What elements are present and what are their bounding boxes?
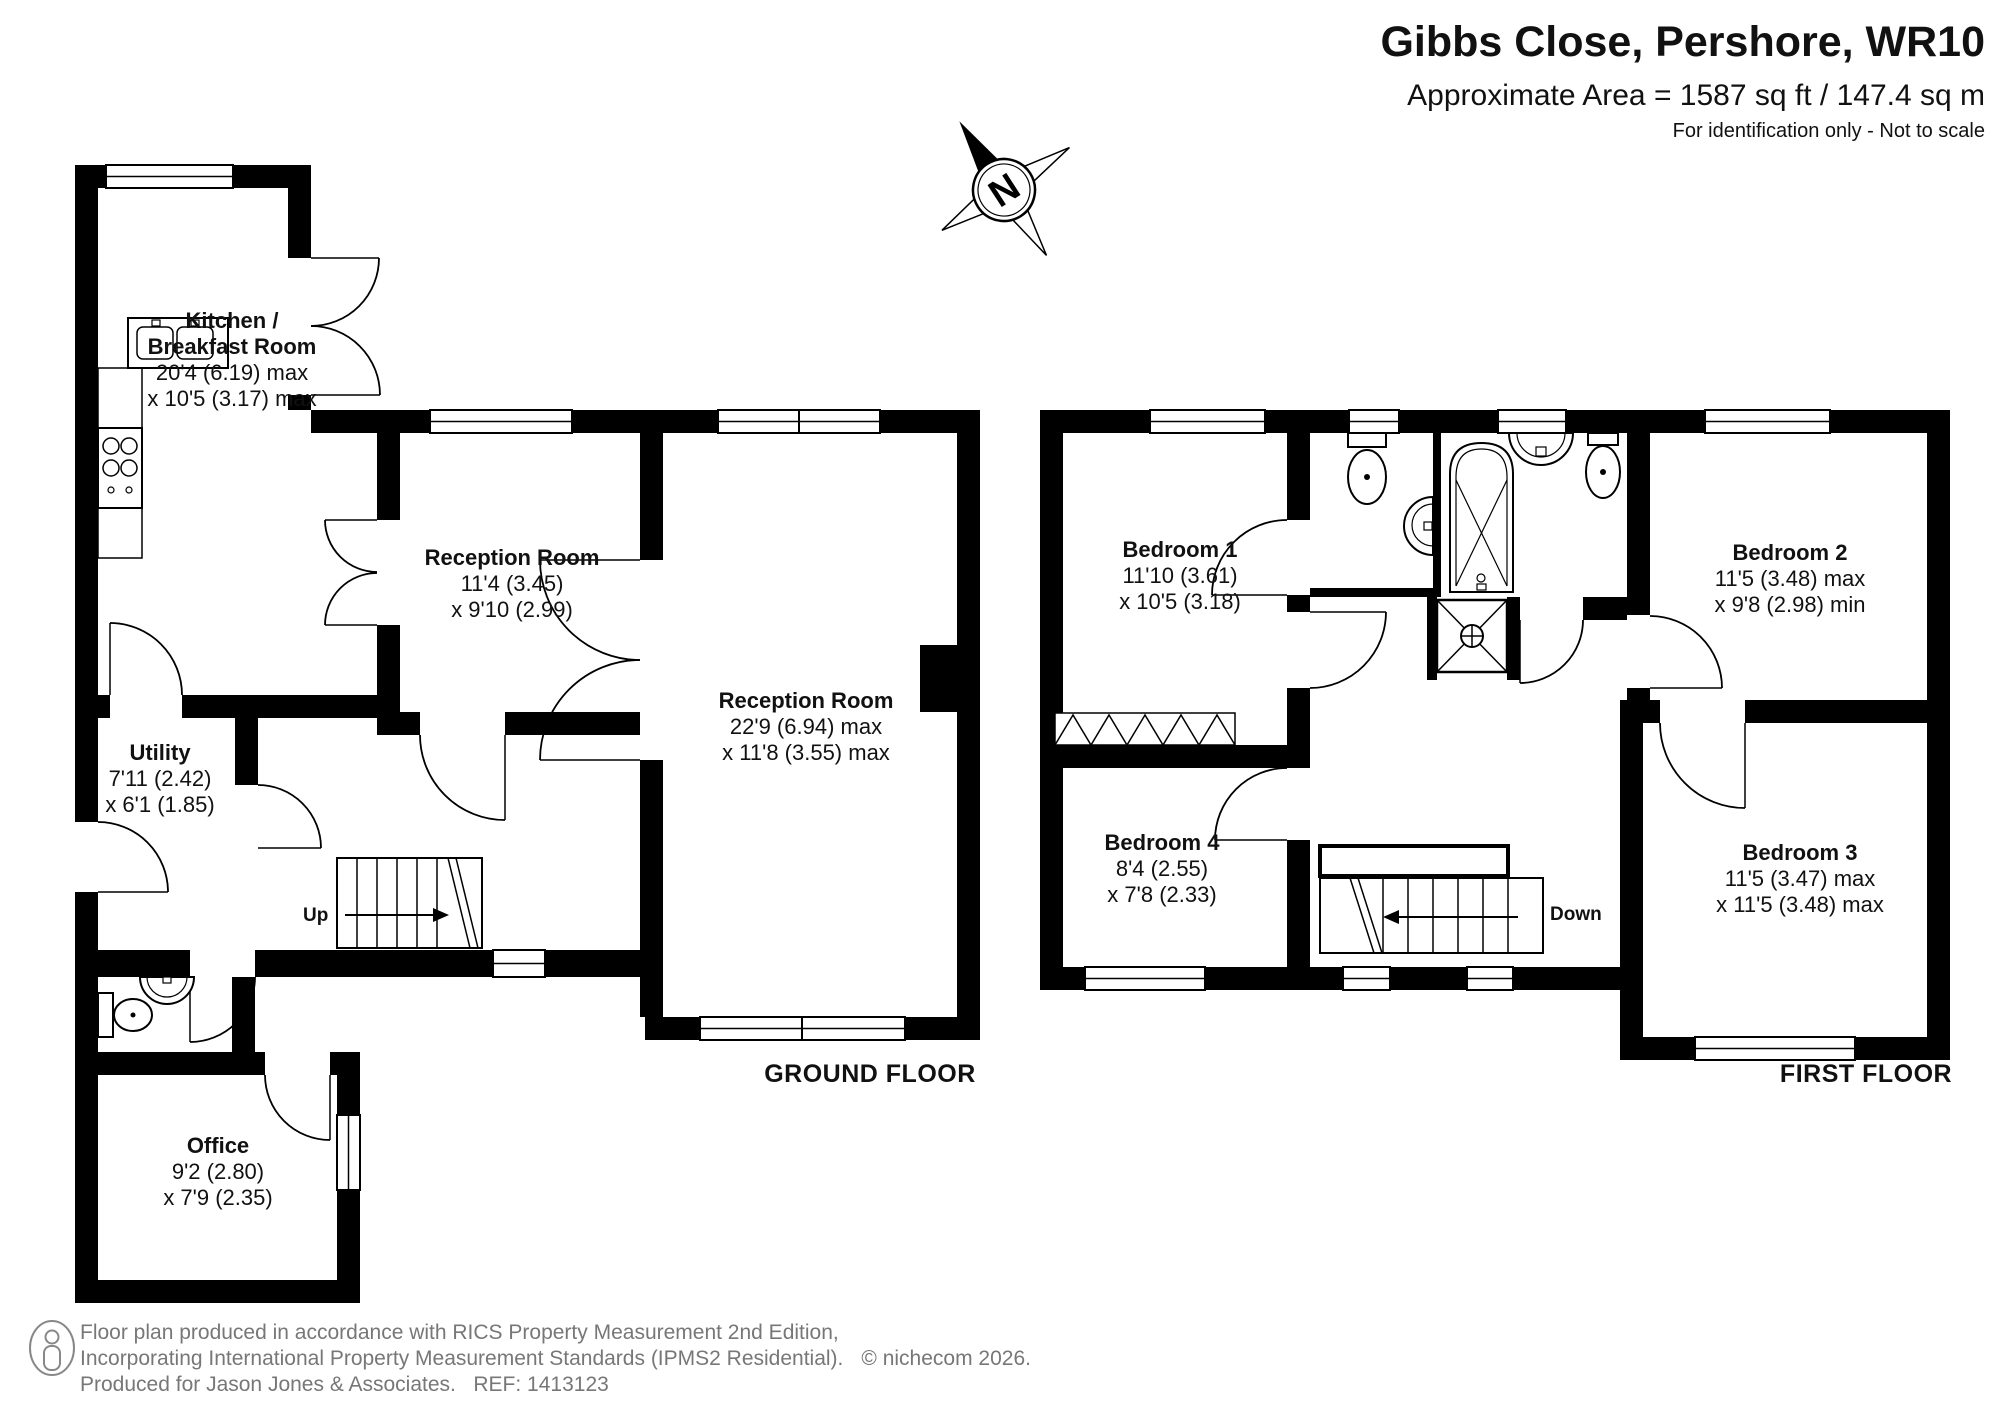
identification-note: For identification only - Not to scale — [1380, 120, 1985, 143]
room-name: Bedroom 1 — [1119, 537, 1241, 563]
window — [106, 165, 233, 188]
room-dimensions: x 6'1 (1.85) — [105, 792, 214, 818]
door-arc — [110, 623, 182, 695]
window — [1498, 410, 1566, 433]
room-dimensions: 11'10 (3.61) — [1119, 563, 1241, 589]
room-dimensions: 11'4 (3.45) — [425, 571, 600, 597]
room-name: Bedroom 3 — [1716, 840, 1884, 866]
room-dimensions: x 10'5 (3.17) max — [147, 386, 316, 412]
bath-icon — [1450, 443, 1513, 592]
copyright-text: © nichecom 2026. — [861, 1347, 1031, 1370]
room-dimensions: 11'5 (3.48) max — [1715, 566, 1866, 592]
ground-floor-title: GROUND FLOOR — [764, 1060, 976, 1089]
basin-icon — [140, 977, 194, 1004]
door-arc — [1310, 612, 1386, 688]
approximate-area-text: Approximate Area = 1587 sq ft / 147.4 sq… — [1380, 79, 1985, 113]
window — [1150, 410, 1265, 433]
room-dimensions: 9'2 (2.80) — [163, 1159, 272, 1185]
window — [337, 1115, 360, 1190]
room-label-utility: Utility 7'11 (2.42) x 6'1 (1.85) — [105, 740, 214, 818]
room-dimensions: 22'9 (6.94) max — [719, 714, 894, 740]
floorplan-page: N Gibbs Close, Pershore, WR10 Approximat… — [0, 0, 2000, 1414]
room-name: Bedroom 4 — [1105, 830, 1220, 856]
basin-icon — [1509, 433, 1573, 465]
window — [700, 1017, 905, 1040]
window — [1343, 967, 1390, 990]
window — [1467, 967, 1513, 990]
plan-header: Gibbs Close, Pershore, WR10 Approximate … — [1380, 18, 1985, 143]
landing-rail — [1320, 846, 1508, 876]
person-logo-icon — [30, 1321, 74, 1375]
room-dimensions: x 11'8 (3.55) max — [719, 740, 894, 766]
room-label-office: Office 9'2 (2.80) x 7'9 (2.35) — [163, 1133, 272, 1211]
wc-fixtures — [98, 977, 194, 1037]
bathroom-fixtures — [1437, 433, 1620, 672]
wardrobe-icon — [1055, 713, 1235, 745]
room-dimensions: 7'11 (2.42) — [105, 766, 214, 792]
room-dimensions: x 10'5 (3.18) — [1119, 589, 1241, 615]
door-arc — [98, 822, 168, 892]
room-name: Breakfast Room — [147, 334, 316, 360]
room-label-bedroom-2: Bedroom 2 11'5 (3.48) max x 9'8 (2.98) m… — [1715, 540, 1866, 618]
stairs-down — [1320, 846, 1543, 953]
door-arc — [1660, 723, 1745, 808]
door-arc — [258, 785, 321, 848]
patio-door-arc — [311, 258, 380, 395]
hob-icon — [98, 428, 142, 508]
footer-line-3: Produced for Jason Jones & Associates. R… — [80, 1372, 1031, 1398]
window — [1085, 967, 1205, 990]
first-floor-title: FIRST FLOOR — [1780, 1060, 1952, 1089]
toilet-icon — [1348, 433, 1386, 504]
room-name: Utility — [105, 740, 214, 766]
toilet-icon — [1586, 433, 1620, 498]
stairs-up — [337, 858, 482, 948]
ensuite-fixtures — [1348, 433, 1433, 555]
chimney-breast — [920, 645, 957, 712]
room-name: Office — [163, 1133, 272, 1159]
room-name: Kitchen / — [147, 308, 316, 334]
room-name: Reception Room — [425, 545, 600, 571]
room-label-reception-room-1: Reception Room 11'4 (3.45) x 9'10 (2.99) — [425, 545, 600, 623]
room-dimensions: 8'4 (2.55) — [1105, 856, 1220, 882]
window — [718, 410, 880, 433]
footer: Floor plan produced in accordance with R… — [80, 1320, 1031, 1398]
room-label-reception-room-2: Reception Room 22'9 (6.94) max x 11'8 (3… — [719, 688, 894, 766]
room-label-bedroom-4: Bedroom 4 8'4 (2.55) x 7'8 (2.33) — [1105, 830, 1220, 908]
window — [430, 410, 572, 433]
shower-icon — [1437, 600, 1507, 672]
room-label-kitchen: Kitchen / Breakfast Room 20'4 (6.19) max… — [147, 308, 316, 412]
room-label-bedroom-3: Bedroom 3 11'5 (3.47) max x 11'5 (3.48) … — [1716, 840, 1884, 918]
footer-line-1: Floor plan produced in accordance with R… — [80, 1320, 1031, 1346]
footer-standards-text: Incorporating International Property Mea… — [80, 1347, 843, 1370]
window — [1695, 1037, 1855, 1060]
room-dimensions: x 7'8 (2.33) — [1105, 882, 1220, 908]
footer-line-2: Incorporating International Property Mea… — [80, 1346, 1031, 1372]
door-arc — [1520, 620, 1583, 683]
stairs-up-label: Up — [303, 905, 328, 927]
room-dimensions: x 9'8 (2.98) min — [1715, 592, 1866, 618]
room-label-bedroom-1: Bedroom 1 11'10 (3.61) x 10'5 (3.18) — [1119, 537, 1241, 615]
door-arc — [1215, 768, 1287, 840]
window — [493, 950, 545, 977]
room-dimensions: x 11'5 (3.48) max — [1716, 892, 1884, 918]
room-name: Bedroom 2 — [1715, 540, 1866, 566]
floorplan-drawing: N — [0, 0, 2000, 1414]
compass-icon: N — [897, 79, 1112, 296]
page-title: Gibbs Close, Pershore, WR10 — [1380, 18, 1985, 67]
room-dimensions: 20'4 (6.19) max — [147, 360, 316, 386]
basin-icon — [1404, 497, 1433, 555]
door-arc — [1650, 616, 1722, 688]
room-dimensions: 11'5 (3.47) max — [1716, 866, 1884, 892]
room-name: Reception Room — [719, 688, 894, 714]
stairs-down-label: Down — [1550, 904, 1602, 926]
door-arc — [265, 1075, 330, 1140]
window — [1349, 410, 1399, 433]
door-arc — [420, 735, 505, 820]
room-dimensions: x 9'10 (2.99) — [425, 597, 600, 623]
room-dimensions: x 7'9 (2.35) — [163, 1185, 272, 1211]
toilet-icon — [98, 993, 152, 1037]
first-floor-plan — [1040, 410, 1950, 1060]
door-arc — [325, 520, 377, 625]
window — [1705, 410, 1830, 433]
